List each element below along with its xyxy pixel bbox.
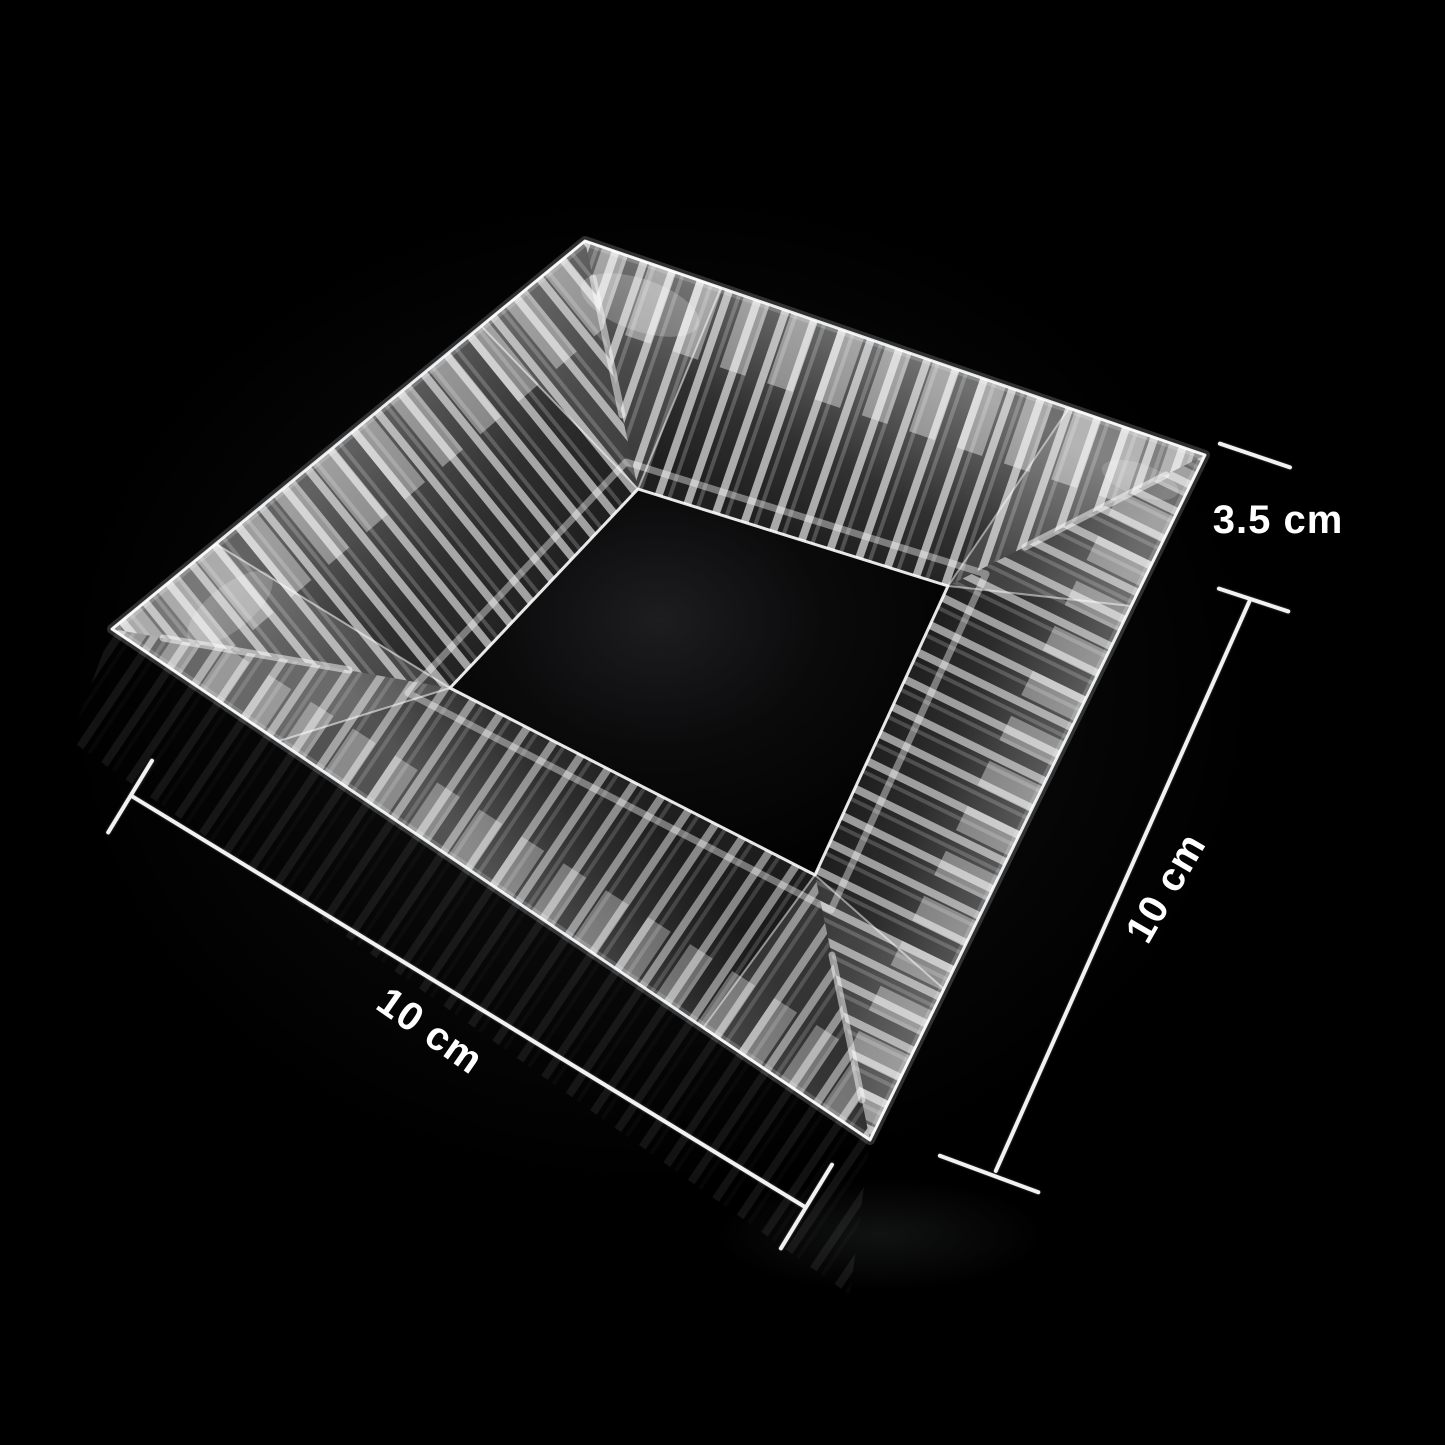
height-label: 3.5 cm <box>1203 497 1353 543</box>
reflection-spot <box>645 1155 1115 1315</box>
product-photo-stage: 3.5 cm 10 cm 10 cm <box>0 0 1445 1445</box>
ashtray-photo <box>0 0 1445 1445</box>
